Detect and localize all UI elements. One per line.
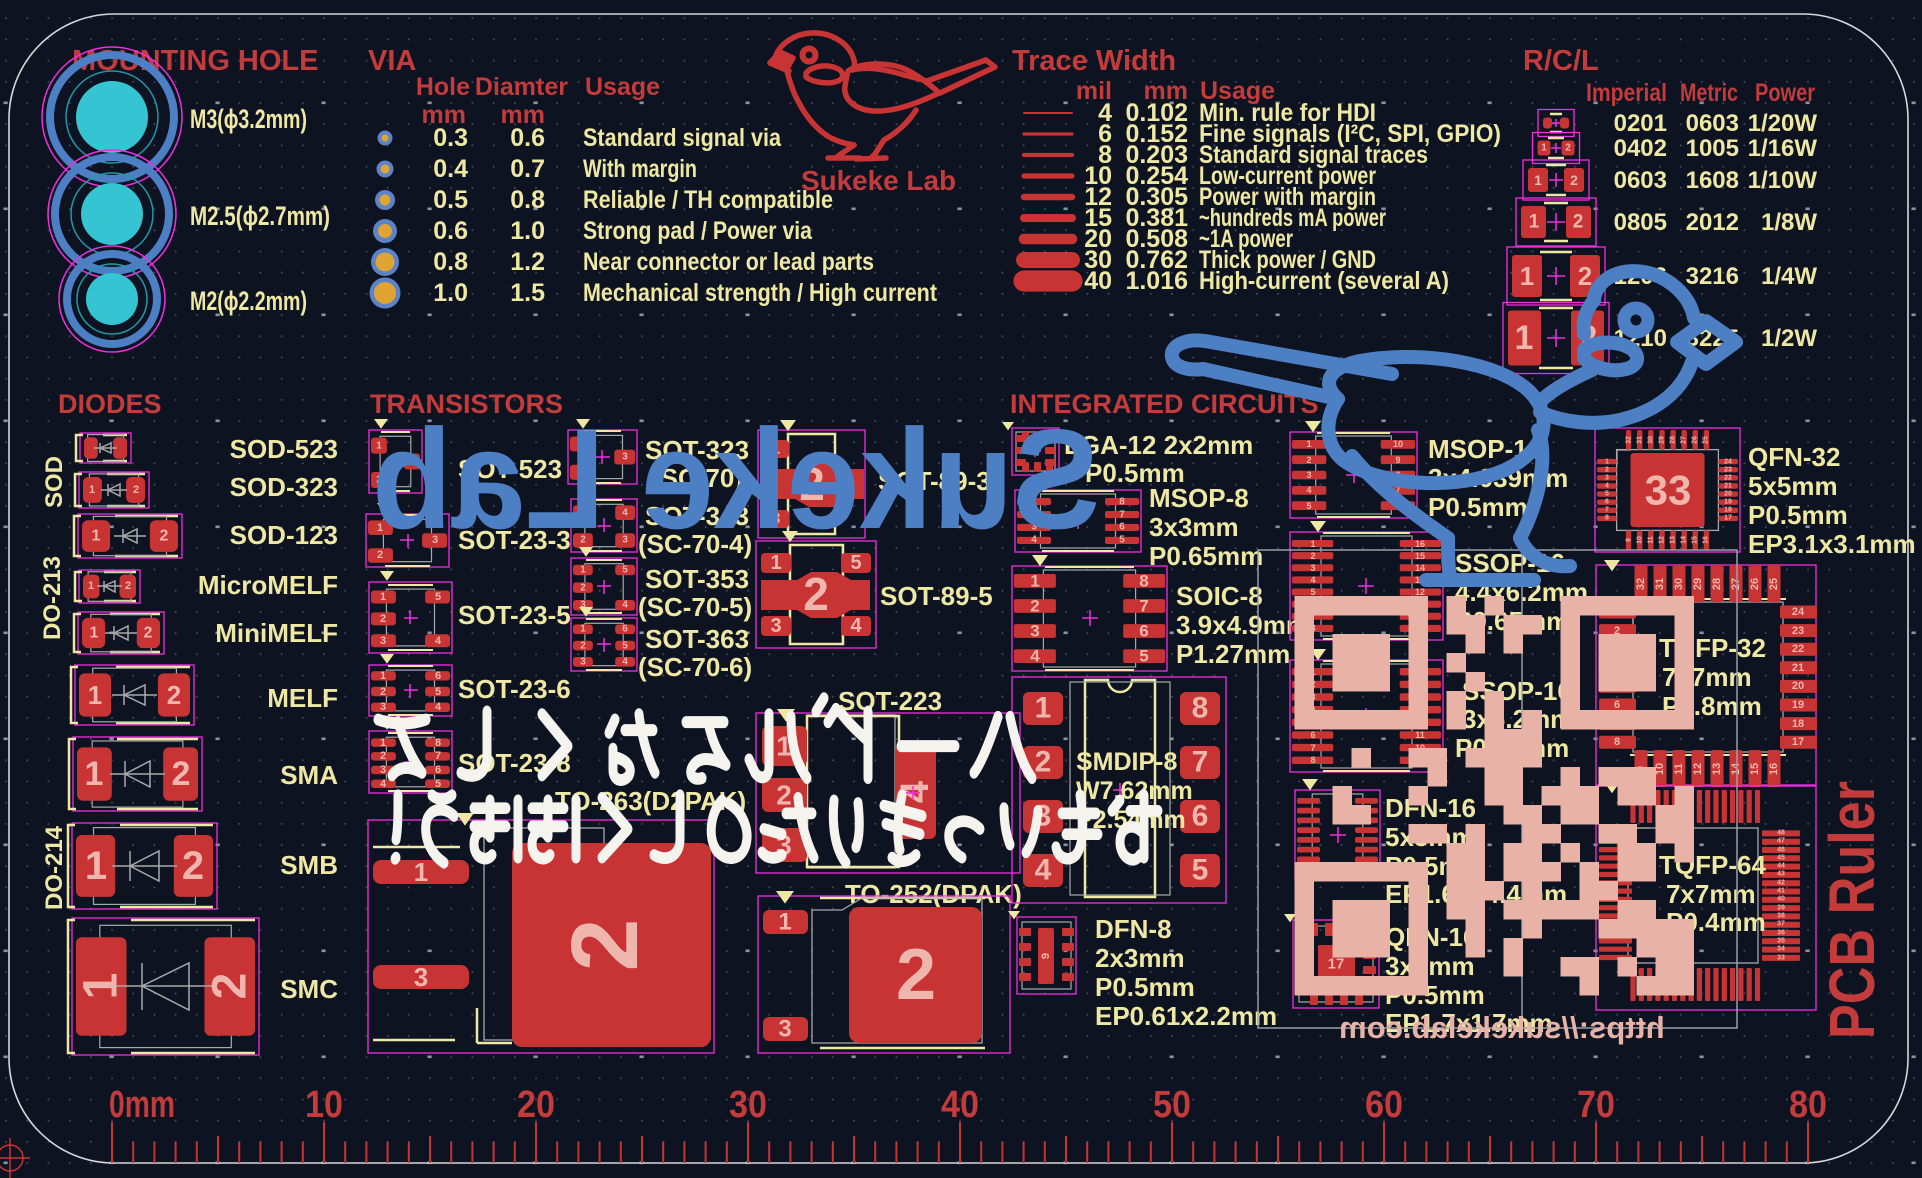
svg-text:2x3mm: 2x3mm — [1095, 943, 1185, 973]
svg-text:3: 3 — [414, 962, 428, 992]
svg-text:11: 11 — [1673, 763, 1685, 775]
svg-text:2: 2 — [167, 680, 181, 710]
svg-text:44: 44 — [1777, 863, 1785, 870]
svg-text:5: 5 — [1605, 491, 1609, 498]
svg-text:1: 1 — [1541, 143, 1547, 154]
svg-text:21: 21 — [1724, 483, 1732, 490]
svg-text:40: 40 — [1084, 267, 1112, 295]
svg-text:43: 43 — [1777, 871, 1785, 878]
svg-text:31: 31 — [1654, 578, 1666, 590]
svg-text:2: 2 — [160, 528, 169, 545]
svg-text:M2.5(ϕ2.7mm): M2.5(ϕ2.7mm) — [190, 201, 330, 231]
svg-text:4: 4 — [1310, 575, 1315, 585]
svg-text:Metric: Metric — [1680, 79, 1738, 107]
svg-text:8: 8 — [1310, 755, 1315, 765]
svg-text:2: 2 — [1578, 261, 1592, 291]
svg-text:33: 33 — [1645, 467, 1692, 514]
svg-text:2: 2 — [580, 583, 586, 594]
svg-text:1/20W: 1/20W — [1748, 110, 1818, 137]
svg-text:SOT-363: SOT-363 — [645, 624, 749, 654]
svg-text:19: 19 — [1792, 699, 1804, 711]
svg-text:6: 6 — [435, 764, 441, 776]
svg-text:Power: Power — [1755, 79, 1815, 107]
svg-text:7: 7 — [1139, 597, 1148, 616]
svg-text:6: 6 — [1310, 730, 1315, 740]
svg-text:Imperial: Imperial — [1586, 79, 1667, 107]
svg-text:0805: 0805 — [1614, 209, 1667, 236]
svg-text:0.3: 0.3 — [433, 124, 468, 152]
svg-text:4: 4 — [1306, 485, 1311, 495]
svg-text:2: 2 — [552, 919, 658, 972]
svg-text:8: 8 — [1192, 692, 1209, 725]
svg-text:MiniMELF: MiniMELF — [215, 618, 338, 648]
svg-text:3x3mm: 3x3mm — [1149, 512, 1239, 542]
svg-text:7: 7 — [1192, 746, 1209, 779]
svg-text:EP0.61x2.2mm: EP0.61x2.2mm — [1095, 1001, 1277, 1031]
svg-text:8: 8 — [1119, 497, 1125, 508]
svg-text:60: 60 — [1365, 1084, 1403, 1126]
svg-text:13: 13 — [1711, 763, 1723, 775]
svg-text:DO-214: DO-214 — [41, 825, 68, 910]
svg-text:MicroMELF: MicroMELF — [198, 570, 338, 600]
svg-text:5: 5 — [435, 591, 441, 603]
svg-text:3: 3 — [1030, 622, 1039, 641]
svg-text:(SC-70-6): (SC-70-6) — [638, 652, 752, 682]
svg-text:1005: 1005 — [1686, 135, 1739, 162]
svg-text:1/8W: 1/8W — [1761, 209, 1817, 236]
svg-text:SOT-353: SOT-353 — [645, 564, 749, 594]
svg-text:0603: 0603 — [1686, 110, 1739, 137]
svg-text:SMC: SMC — [280, 974, 338, 1004]
svg-text:1: 1 — [1529, 212, 1540, 233]
svg-text:1: 1 — [580, 565, 586, 576]
svg-text:3: 3 — [770, 615, 781, 637]
svg-text:1: 1 — [380, 591, 386, 603]
svg-text:38: 38 — [1777, 913, 1785, 920]
svg-text:M2(ϕ2.2mm): M2(ϕ2.2mm) — [190, 286, 307, 316]
svg-text:2: 2 — [896, 935, 936, 1015]
svg-text:PCB Ruler: PCB Ruler — [1816, 781, 1888, 1039]
svg-text:0.8: 0.8 — [433, 248, 468, 276]
svg-text:1/4W: 1/4W — [1761, 263, 1817, 290]
svg-text:41: 41 — [1777, 888, 1785, 895]
svg-text:1: 1 — [88, 580, 94, 592]
svg-text:With margin: With margin — [583, 155, 697, 183]
svg-text:0201: 0201 — [1614, 110, 1667, 137]
svg-text:3: 3 — [1310, 563, 1315, 573]
svg-text:1.016: 1.016 — [1125, 267, 1188, 295]
svg-text:12: 12 — [1692, 763, 1704, 775]
svg-text:21: 21 — [1792, 662, 1804, 674]
svg-text:SOD: SOD — [41, 456, 68, 508]
svg-text:SOT-223: SOT-223 — [838, 686, 942, 716]
svg-text:1: 1 — [778, 909, 791, 936]
svg-text:Standard signal via: Standard signal via — [583, 124, 782, 152]
svg-text:2: 2 — [380, 686, 386, 698]
svg-text:4: 4 — [622, 657, 628, 668]
svg-text:25: 25 — [1768, 578, 1780, 590]
svg-text:TO-252(DPAK): TO-252(DPAK) — [845, 879, 1022, 909]
svg-text:M3(ϕ3.2mm): M3(ϕ3.2mm) — [190, 104, 307, 134]
svg-text:2: 2 — [204, 973, 257, 1000]
svg-text:18: 18 — [1724, 507, 1732, 514]
svg-text:32: 32 — [1635, 578, 1647, 590]
svg-text:EP3.1x3.1mm: EP3.1x3.1mm — [1748, 529, 1916, 559]
svg-text:https://sukekelab.com: https://sukekelab.com — [1339, 1010, 1665, 1045]
svg-text:2: 2 — [1030, 597, 1039, 616]
svg-text:4: 4 — [1605, 483, 1609, 490]
svg-text:0603: 0603 — [1614, 167, 1667, 194]
svg-text:0.7: 0.7 — [510, 155, 545, 183]
svg-text:3: 3 — [380, 635, 386, 647]
svg-text:11: 11 — [1648, 536, 1655, 544]
svg-text:MSOP-8: MSOP-8 — [1149, 483, 1249, 513]
svg-text:4: 4 — [622, 600, 628, 611]
svg-text:10: 10 — [1637, 536, 1644, 544]
svg-text:1: 1 — [380, 737, 386, 749]
svg-text:2: 2 — [1565, 143, 1571, 154]
svg-text:13: 13 — [1670, 536, 1677, 544]
svg-text:4: 4 — [435, 701, 442, 713]
svg-text:3: 3 — [580, 657, 586, 668]
svg-text:1: 1 — [1306, 439, 1311, 449]
svg-text:2: 2 — [1306, 455, 1311, 465]
svg-text:80: 80 — [1789, 1084, 1827, 1126]
svg-text:SOT-23-5: SOT-23-5 — [458, 600, 571, 630]
svg-text:24: 24 — [1792, 606, 1805, 618]
svg-text:SOIC-8: SOIC-8 — [1176, 581, 1263, 611]
svg-text:SOT-23-6: SOT-23-6 — [458, 674, 571, 704]
svg-text:27: 27 — [1681, 436, 1688, 444]
svg-text:50: 50 — [1153, 1084, 1191, 1126]
svg-text:24: 24 — [1724, 459, 1732, 466]
svg-text:28: 28 — [1711, 578, 1723, 590]
svg-text:2: 2 — [1605, 467, 1609, 474]
svg-text:45: 45 — [1777, 855, 1785, 862]
svg-text:SMDIP-8: SMDIP-8 — [1076, 748, 1178, 776]
svg-text:5: 5 — [1310, 587, 1315, 597]
svg-text:22: 22 — [1724, 475, 1732, 482]
svg-text:5x5mm: 5x5mm — [1748, 471, 1838, 501]
svg-text:26: 26 — [1749, 578, 1761, 590]
svg-text:0402: 0402 — [1614, 135, 1667, 162]
svg-text:SMA: SMA — [280, 760, 338, 790]
svg-text:20: 20 — [1792, 680, 1804, 692]
svg-text:1: 1 — [580, 624, 586, 635]
svg-text:17: 17 — [1328, 956, 1345, 973]
svg-text:4: 4 — [1035, 854, 1052, 887]
svg-text:12: 12 — [1415, 587, 1425, 597]
svg-text:23: 23 — [1724, 467, 1732, 474]
svg-text:5: 5 — [435, 778, 441, 790]
svg-text:1: 1 — [90, 625, 99, 642]
svg-text:3: 3 — [1306, 470, 1311, 480]
svg-text:W7.62mm: W7.62mm — [1076, 777, 1193, 805]
svg-text:6: 6 — [1614, 699, 1620, 711]
svg-text:2: 2 — [803, 568, 829, 620]
svg-text:6: 6 — [622, 624, 628, 635]
svg-text:4: 4 — [1030, 647, 1040, 666]
svg-text:14: 14 — [1415, 563, 1425, 573]
svg-text:SMB: SMB — [280, 850, 338, 880]
svg-text:DIODES: DIODES — [58, 389, 162, 419]
svg-text:30: 30 — [729, 1084, 767, 1126]
svg-text:10: 10 — [305, 1084, 343, 1126]
svg-text:Diamter: Diamter — [475, 73, 568, 101]
svg-text:1/10W: 1/10W — [1748, 167, 1818, 194]
svg-text:2: 2 — [380, 613, 386, 625]
svg-text:2: 2 — [1310, 551, 1315, 561]
svg-text:5: 5 — [435, 686, 441, 698]
svg-text:8: 8 — [435, 737, 441, 749]
svg-text:1: 1 — [1605, 459, 1609, 466]
svg-text:DFN-8: DFN-8 — [1095, 914, 1172, 944]
svg-text:48: 48 — [1777, 830, 1785, 837]
svg-text:1.0: 1.0 — [433, 279, 468, 307]
svg-text:0.5: 0.5 — [433, 186, 468, 214]
svg-text:0.6: 0.6 — [433, 217, 468, 245]
svg-text:1.0: 1.0 — [510, 217, 545, 245]
svg-text:6: 6 — [1192, 800, 1209, 833]
svg-text:Sukeke Lab: Sukeke Lab — [372, 400, 1100, 559]
svg-text:9: 9 — [1626, 538, 1633, 542]
svg-text:37: 37 — [1777, 921, 1785, 928]
svg-text:8: 8 — [1614, 736, 1620, 748]
svg-text:4: 4 — [435, 635, 442, 647]
svg-text:17: 17 — [1724, 515, 1732, 522]
svg-text:1: 1 — [85, 755, 104, 793]
svg-text:VIA: VIA — [368, 45, 416, 77]
svg-text:5: 5 — [622, 565, 628, 576]
svg-text:Strong pad / Power via: Strong pad / Power via — [583, 217, 813, 245]
svg-text:18: 18 — [1792, 718, 1804, 730]
svg-text:1: 1 — [85, 844, 107, 888]
svg-text:25: 25 — [1703, 436, 1710, 444]
svg-text:P0.5mm: P0.5mm — [1748, 500, 1848, 530]
svg-text:30: 30 — [1673, 578, 1685, 590]
svg-text:7: 7 — [1310, 743, 1315, 753]
svg-text:40: 40 — [941, 1084, 979, 1126]
svg-text:0mm: 0mm — [109, 1084, 175, 1126]
svg-text:SOD-123: SOD-123 — [230, 520, 338, 550]
svg-text:SOD-523: SOD-523 — [230, 434, 338, 464]
svg-text:3: 3 — [778, 1016, 791, 1043]
svg-text:35: 35 — [1777, 938, 1785, 945]
svg-text:P0.5mm: P0.5mm — [1095, 972, 1195, 1002]
svg-text:1/2W: 1/2W — [1761, 325, 1817, 352]
svg-text:3.9x4.9mm: 3.9x4.9mm — [1176, 610, 1309, 640]
svg-text:Hole: Hole — [416, 73, 470, 101]
svg-text:2: 2 — [182, 844, 204, 888]
svg-text:2: 2 — [776, 780, 792, 811]
svg-text:1: 1 — [89, 484, 95, 496]
svg-text:8: 8 — [1139, 572, 1148, 591]
svg-text:1/16W: 1/16W — [1748, 135, 1818, 162]
svg-text:High-current (several A): High-current (several A) — [1199, 267, 1449, 295]
svg-text:2012: 2012 — [1686, 209, 1739, 236]
svg-text:QFN-32: QFN-32 — [1748, 442, 1840, 472]
svg-text:P1.27mm: P1.27mm — [1176, 639, 1290, 669]
svg-text:6: 6 — [1605, 499, 1609, 506]
svg-text:DO-213: DO-213 — [39, 556, 66, 640]
svg-text:0.8: 0.8 — [510, 186, 545, 214]
svg-text:5: 5 — [1119, 535, 1125, 546]
svg-text:1608: 1608 — [1686, 167, 1739, 194]
svg-text:1: 1 — [380, 670, 386, 682]
svg-text:1.2: 1.2 — [510, 248, 545, 276]
svg-text:4: 4 — [380, 778, 387, 790]
svg-text:2: 2 — [1570, 172, 1578, 188]
svg-text:17: 17 — [1792, 736, 1804, 748]
svg-text:14: 14 — [1730, 762, 1742, 775]
svg-text:42: 42 — [1777, 880, 1785, 887]
svg-text:28: 28 — [1670, 436, 1677, 444]
svg-text:SOT-89-5: SOT-89-5 — [880, 581, 993, 611]
svg-text:16: 16 — [1415, 539, 1425, 549]
svg-text:2: 2 — [144, 625, 153, 642]
svg-text:12: 12 — [1659, 536, 1666, 544]
svg-text:5: 5 — [1192, 854, 1209, 887]
svg-text:33: 33 — [1777, 955, 1785, 962]
svg-text:32: 32 — [1626, 436, 1633, 444]
svg-text:7: 7 — [1605, 507, 1609, 514]
svg-text:10: 10 — [1393, 439, 1403, 449]
svg-text:5: 5 — [1139, 647, 1148, 666]
svg-text:MOUNTING HOLE: MOUNTING HOLE — [72, 45, 319, 77]
svg-text:6: 6 — [1139, 622, 1148, 641]
svg-text:3216: 3216 — [1686, 263, 1739, 290]
svg-text:29: 29 — [1692, 578, 1704, 590]
svg-text:34: 34 — [1777, 946, 1785, 953]
svg-text:DFN-16: DFN-16 — [1385, 793, 1476, 823]
svg-text:Usage: Usage — [585, 73, 660, 101]
svg-text:1: 1 — [88, 680, 102, 710]
svg-text:2: 2 — [380, 750, 386, 762]
svg-text:0.4: 0.4 — [433, 155, 468, 183]
svg-text:29: 29 — [1659, 436, 1666, 444]
svg-text:70: 70 — [1577, 1084, 1615, 1126]
svg-text:26: 26 — [1692, 436, 1699, 444]
svg-text:15: 15 — [1692, 536, 1699, 544]
svg-text:1: 1 — [1520, 261, 1534, 291]
svg-text:7: 7 — [435, 750, 441, 762]
svg-text:5: 5 — [1306, 501, 1311, 511]
svg-text:47: 47 — [1777, 838, 1785, 845]
svg-text:15: 15 — [1415, 551, 1425, 561]
svg-text:40: 40 — [1777, 896, 1785, 903]
svg-text:1: 1 — [1030, 572, 1039, 591]
svg-text:Sukeke Lab: Sukeke Lab — [801, 165, 956, 196]
svg-text:1: 1 — [414, 857, 428, 887]
svg-text:30: 30 — [1648, 436, 1655, 444]
svg-text:22: 22 — [1792, 643, 1804, 655]
svg-text:2: 2 — [1573, 212, 1584, 233]
svg-text:1: 1 — [1035, 692, 1052, 725]
svg-text:27: 27 — [1730, 578, 1742, 590]
svg-text:7: 7 — [1119, 510, 1125, 521]
svg-text:8: 8 — [1605, 515, 1609, 522]
svg-text:16: 16 — [1768, 763, 1780, 775]
svg-text:9: 9 — [1040, 953, 1052, 959]
svg-text:0.6: 0.6 — [510, 124, 545, 152]
svg-text:Trace Width: Trace Width — [1012, 45, 1176, 77]
svg-text:23: 23 — [1792, 625, 1804, 637]
svg-text:11: 11 — [1415, 730, 1425, 740]
svg-text:SOD-323: SOD-323 — [230, 472, 338, 502]
svg-text:Reliable / TH compatible: Reliable / TH compatible — [583, 186, 833, 214]
svg-text:R/C/L: R/C/L — [1523, 45, 1599, 77]
svg-text:39: 39 — [1777, 905, 1785, 912]
svg-text:1.5: 1.5 — [510, 279, 545, 307]
svg-text:6: 6 — [435, 670, 441, 682]
svg-text:Mechanical strength / High cur: Mechanical strength / High current — [583, 279, 938, 307]
svg-text:6: 6 — [1119, 522, 1125, 533]
svg-text:15: 15 — [1749, 763, 1761, 775]
svg-text:36: 36 — [1777, 930, 1785, 937]
svg-text:7x7mm: 7x7mm — [1666, 879, 1756, 909]
svg-text:1: 1 — [92, 528, 101, 545]
svg-text:14: 14 — [1681, 536, 1688, 544]
svg-text:20: 20 — [517, 1084, 555, 1126]
svg-text:16: 16 — [1703, 536, 1710, 544]
svg-text:(SC-70-5): (SC-70-5) — [638, 592, 752, 622]
svg-text:1: 1 — [1515, 319, 1534, 357]
svg-text:2: 2 — [125, 580, 131, 592]
svg-text:3: 3 — [380, 701, 386, 713]
svg-text:4: 4 — [850, 615, 862, 637]
svg-text:1: 1 — [1310, 539, 1315, 549]
svg-text:31: 31 — [1637, 436, 1644, 444]
svg-text:3: 3 — [380, 764, 386, 776]
svg-text:MELF: MELF — [267, 683, 338, 713]
svg-text:3: 3 — [1605, 475, 1609, 482]
svg-text:20: 20 — [1724, 491, 1732, 498]
svg-text:Near connector or lead parts: Near connector or lead parts — [583, 248, 874, 276]
svg-text:2: 2 — [172, 755, 191, 793]
svg-text:19: 19 — [1724, 499, 1732, 506]
svg-text:46: 46 — [1777, 847, 1785, 854]
svg-text:P0.5mm: P0.5mm — [1428, 492, 1528, 522]
svg-text:2: 2 — [1035, 746, 1052, 779]
svg-text:5: 5 — [622, 641, 628, 652]
svg-text:9: 9 — [1395, 455, 1400, 465]
svg-text:2: 2 — [133, 484, 139, 496]
svg-text:1: 1 — [1534, 172, 1542, 188]
svg-text:2: 2 — [580, 641, 586, 652]
svg-text:QFN-16: QFN-16 — [1385, 922, 1477, 952]
svg-text:1: 1 — [75, 973, 128, 1000]
